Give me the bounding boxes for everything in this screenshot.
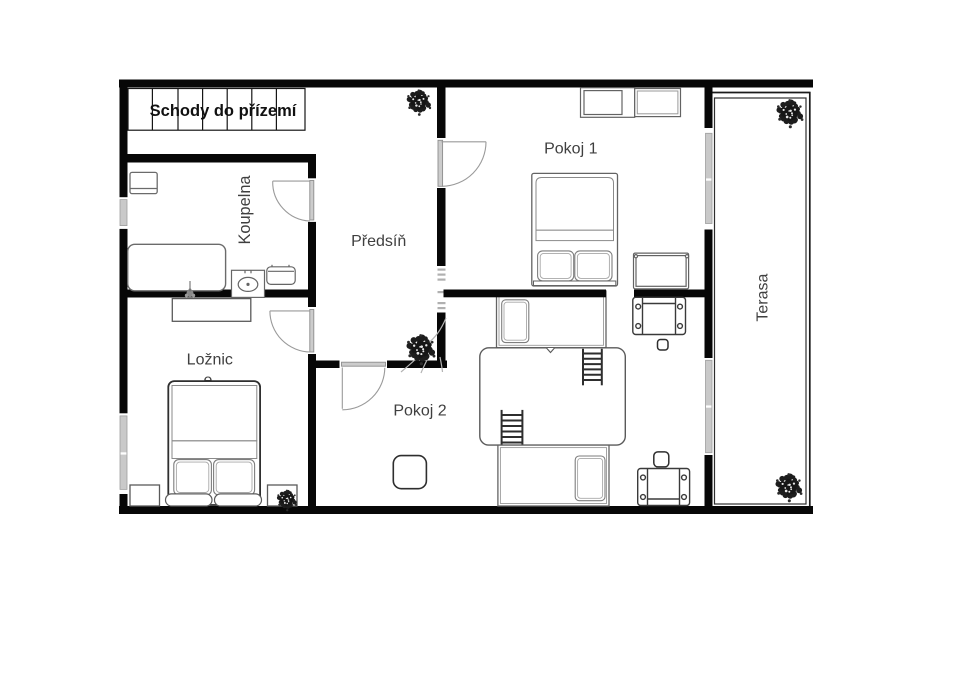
svg-text:Ložnic: Ložnic — [187, 352, 233, 369]
svg-text:Předsíň: Předsíň — [351, 233, 406, 250]
svg-text:Terasa: Terasa — [755, 273, 772, 321]
svg-text:Schody do přízemí: Schody do přízemí — [150, 102, 298, 120]
svg-text:Pokoj 2: Pokoj 2 — [393, 403, 446, 420]
svg-text:Koupelna: Koupelna — [235, 175, 254, 245]
svg-text:Pokoj 1: Pokoj 1 — [544, 140, 597, 157]
